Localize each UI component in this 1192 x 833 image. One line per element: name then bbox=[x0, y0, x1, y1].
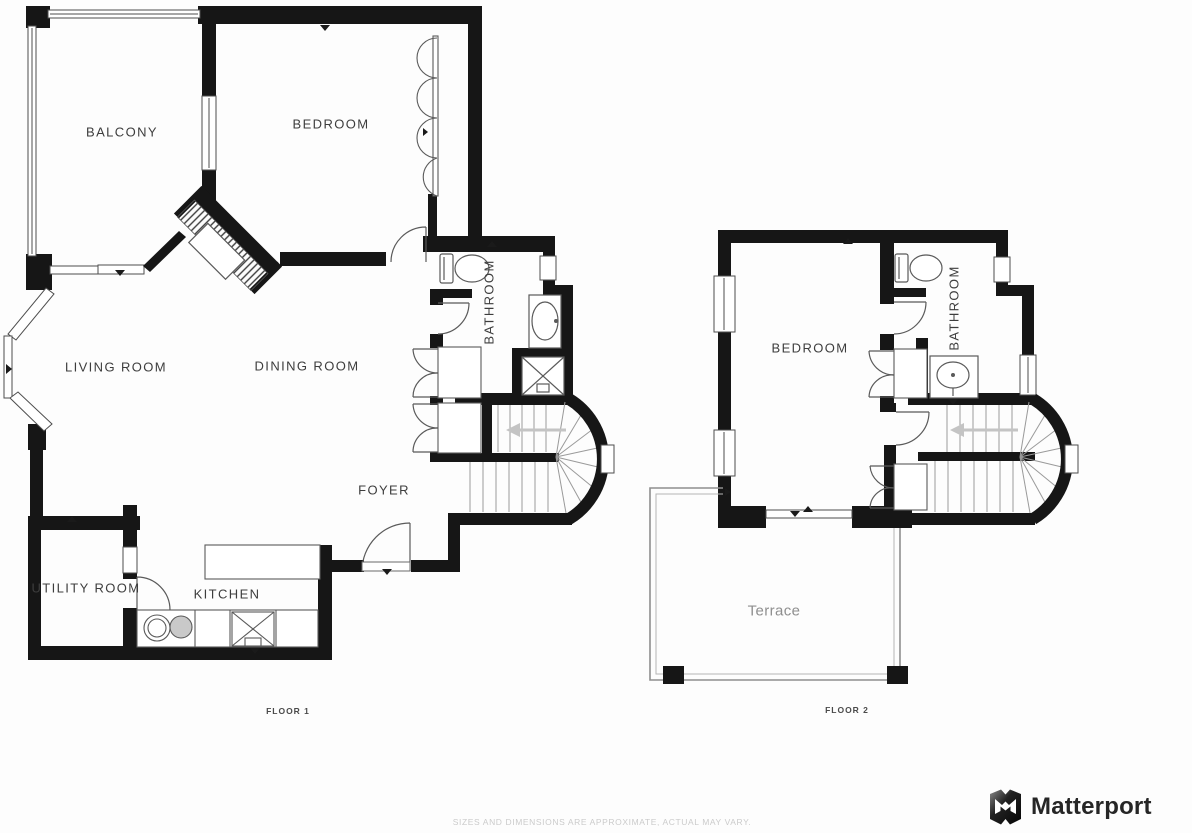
bedroom-closet-doors bbox=[417, 36, 438, 196]
stairs-curved-wall bbox=[569, 399, 603, 519]
nook-wall bbox=[143, 231, 186, 272]
floor2-closets bbox=[894, 349, 927, 510]
bathroom-sink-icon bbox=[529, 295, 561, 348]
f2-stairs-curved-wall bbox=[1033, 399, 1067, 519]
floorplan-page: BALCONY BEDROOM LIVING ROOM DINING ROOM … bbox=[0, 0, 1192, 833]
stairs-window bbox=[601, 445, 614, 473]
f2-bathroom-door bbox=[894, 302, 926, 334]
fireplace bbox=[167, 186, 282, 301]
utility-door bbox=[137, 577, 170, 610]
terrace-post bbox=[887, 666, 908, 684]
f2-stairs-window bbox=[1065, 445, 1078, 473]
hall-closet2-door-a bbox=[413, 404, 438, 428]
matterport-logo: Matterport bbox=[989, 789, 1152, 825]
bathroom-window bbox=[540, 256, 556, 280]
label-foyer: FOYER bbox=[358, 483, 410, 498]
bathroom-door bbox=[438, 303, 469, 334]
f2-stairs-up-arrow bbox=[950, 423, 1018, 437]
floor1-plan bbox=[4, 6, 614, 660]
floor2-plan bbox=[650, 230, 1078, 684]
f2-sink-icon bbox=[930, 356, 978, 398]
label-terrace: Terrace bbox=[748, 603, 801, 620]
floor2-label: FLOOR 2 bbox=[825, 705, 869, 715]
f2-closet1-door-a bbox=[869, 351, 894, 375]
shower-icon bbox=[522, 357, 564, 395]
f2-stairs-door bbox=[896, 412, 929, 445]
hall-closet2-door-b bbox=[413, 428, 438, 452]
hall-closet1-door-a bbox=[413, 349, 438, 373]
label-utility-room: UTILITY ROOM bbox=[31, 581, 140, 596]
kitchen-sink2-icon bbox=[170, 616, 192, 638]
disclaimer-text: SIZES AND DIMENSIONS ARE APPROXIMATE, AC… bbox=[453, 817, 752, 827]
label-kitchen: KITCHEN bbox=[194, 587, 261, 602]
matterport-m-icon bbox=[989, 789, 1022, 825]
stove-icon bbox=[232, 612, 274, 646]
label-balcony: BALCONY bbox=[86, 125, 158, 140]
f2-closet1-door-b bbox=[869, 375, 894, 397]
floor1-label: FLOOR 1 bbox=[266, 706, 310, 716]
label-bathroom-f1: BATHROOM bbox=[482, 259, 497, 344]
brand-name: Matterport bbox=[1031, 793, 1152, 821]
utility-window bbox=[123, 547, 137, 573]
stairs-up-arrow bbox=[506, 423, 566, 437]
terrace-post bbox=[663, 666, 684, 684]
label-bedroom-f1: BEDROOM bbox=[293, 117, 370, 132]
f2-toilet-icon bbox=[895, 254, 942, 282]
label-bathroom-f2: BATHROOM bbox=[947, 265, 962, 350]
kitchen-island bbox=[205, 545, 320, 579]
label-dining-room: DINING ROOM bbox=[255, 359, 360, 374]
hall-closet1-door-b bbox=[413, 373, 438, 397]
label-living-room: LIVING ROOM bbox=[65, 360, 167, 375]
bedroom-door bbox=[391, 227, 426, 262]
floorplan-graphics bbox=[0, 0, 1192, 833]
label-bedroom-f2: BEDROOM bbox=[772, 341, 849, 356]
